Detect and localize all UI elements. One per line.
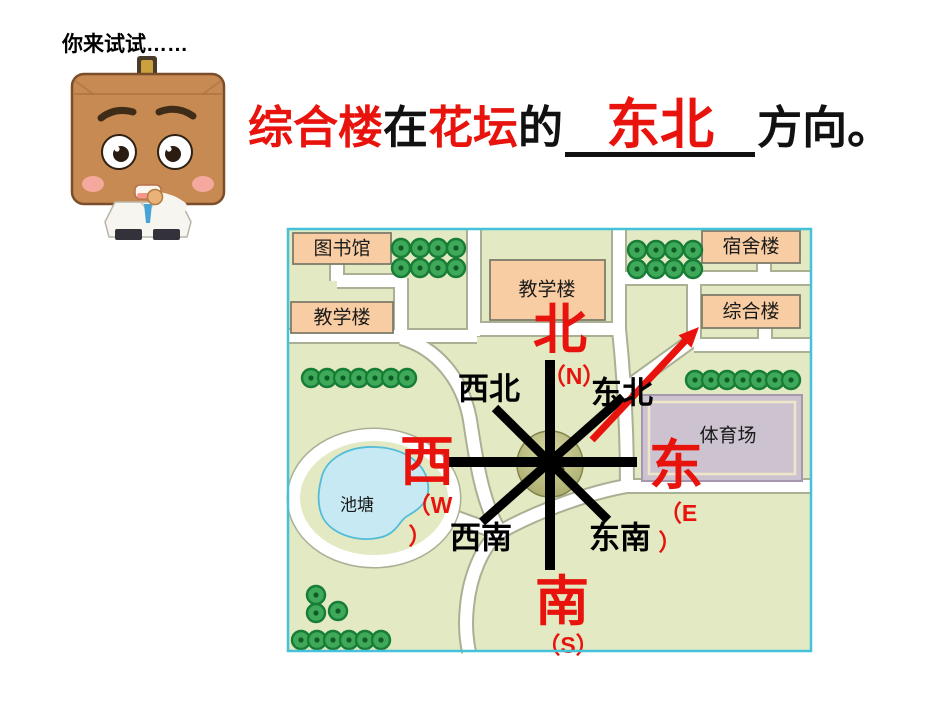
campus-map: 池塘 体育场 图书馆 教学楼 教学楼 宿舍楼 综合楼 [287, 228, 812, 652]
answer-text: 东北 [606, 95, 714, 155]
building-library: 图书馆 [293, 233, 391, 264]
compass-east-label: 东 [649, 436, 703, 496]
building-complex-label: 综合楼 [722, 301, 779, 323]
question-reference: 花坛 [428, 105, 518, 150]
slide: 你来试试…… [0, 0, 950, 713]
question-verb: 在 [383, 105, 428, 150]
compass-east-abbr-open: （E [659, 500, 697, 526]
trees-left-row [302, 369, 416, 387]
compass-south-abbr: （S） [537, 632, 598, 658]
building-teaching-center-label: 教学楼 [518, 279, 575, 301]
building-library-label: 图书馆 [313, 238, 370, 260]
question-sentence: 综合楼 在 花坛 的 东北 方向。 [248, 98, 892, 157]
building-dormitory: 宿舍楼 [702, 231, 800, 263]
mascot-hand [148, 190, 163, 205]
question-particle: 的 [518, 105, 563, 150]
compass-west-label: 西 [400, 432, 454, 492]
compass-southwest-label: 西南 [450, 521, 512, 556]
compass-south-label: 南 [535, 572, 589, 632]
mascot-cheek-right [192, 176, 214, 192]
compass-east-abbr-close: ） [659, 529, 682, 555]
compass-southeast-label: 东南 [589, 521, 651, 556]
compass-west-abbr-close: ） [409, 523, 432, 549]
compass-north-label: 北 [533, 300, 587, 360]
building-complex: 综合楼 [702, 295, 800, 328]
answer-blank: 东北 [565, 98, 755, 157]
mascot-cheek-left [82, 176, 104, 192]
compass-west-abbr-open: （W [408, 492, 453, 518]
trees-right-row [686, 371, 800, 389]
question-subject: 综合楼 [248, 105, 383, 150]
question-suffix: 方向。 [757, 105, 892, 150]
compass-northwest-label: 西北 [458, 372, 520, 407]
building-teaching-left-label: 教学楼 [313, 307, 370, 329]
mascot-character [55, 50, 240, 240]
building-dormitory-label: 宿舍楼 [722, 236, 779, 258]
pond-label: 池塘 [340, 496, 374, 515]
building-teaching-left: 教学楼 [291, 302, 393, 333]
compass-northeast-label: 东北 [591, 376, 653, 411]
stadium-label: 体育场 [699, 425, 756, 447]
